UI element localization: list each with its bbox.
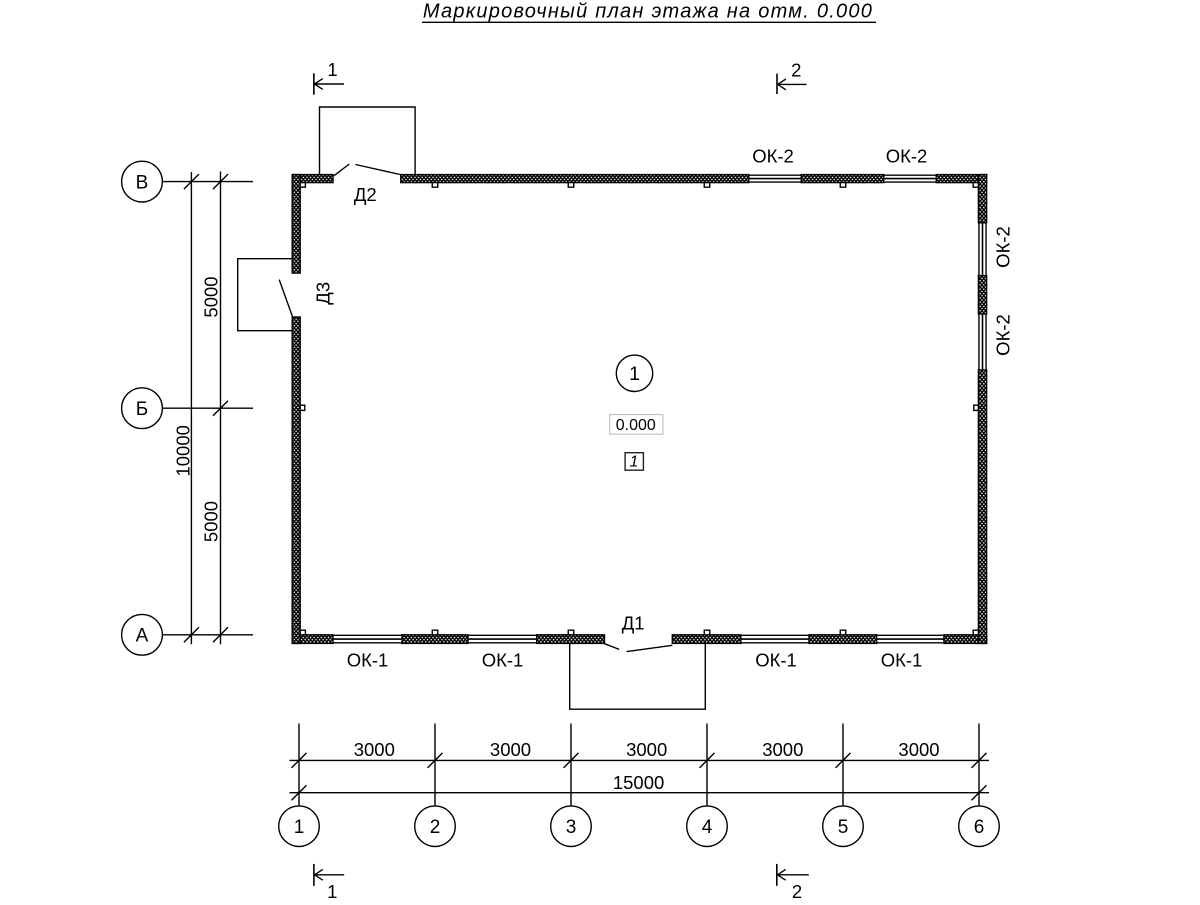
- svg-text:3000: 3000: [490, 739, 531, 760]
- svg-text:4: 4: [702, 817, 713, 838]
- svg-text:1: 1: [327, 59, 337, 80]
- svg-text:ОК-2: ОК-2: [993, 226, 1014, 268]
- svg-text:ОК-1: ОК-1: [881, 650, 923, 671]
- svg-text:3000: 3000: [626, 739, 667, 760]
- svg-text:3: 3: [566, 817, 577, 838]
- svg-text:10000: 10000: [173, 425, 194, 476]
- svg-text:ОК-1: ОК-1: [482, 650, 524, 671]
- svg-text:ОК-1: ОК-1: [755, 650, 797, 671]
- svg-text:2: 2: [792, 881, 802, 900]
- svg-text:3000: 3000: [354, 739, 395, 760]
- svg-text:3000: 3000: [898, 739, 939, 760]
- svg-text:ОК-2: ОК-2: [752, 145, 794, 166]
- svg-text:Маркировочный план этажа на от: Маркировочный план этажа на отм. 0.000: [423, 1, 873, 23]
- svg-text:5: 5: [838, 817, 849, 838]
- svg-text:1: 1: [630, 454, 639, 471]
- svg-text:1: 1: [294, 817, 305, 838]
- svg-text:15000: 15000: [613, 772, 664, 793]
- svg-text:1: 1: [327, 881, 337, 900]
- svg-text:ОК-1: ОК-1: [347, 650, 389, 671]
- svg-text:3000: 3000: [762, 739, 803, 760]
- svg-text:5000: 5000: [201, 501, 222, 542]
- svg-text:5000: 5000: [201, 276, 222, 317]
- svg-text:ОК-2: ОК-2: [886, 145, 928, 166]
- svg-text:0.000: 0.000: [616, 417, 656, 434]
- svg-text:Б: Б: [136, 399, 148, 420]
- svg-text:6: 6: [974, 817, 985, 838]
- svg-text:Д1: Д1: [622, 613, 645, 634]
- svg-text:1: 1: [629, 363, 640, 385]
- svg-text:2: 2: [791, 60, 801, 81]
- svg-text:Д3: Д3: [313, 282, 334, 305]
- svg-text:ОК-2: ОК-2: [993, 314, 1014, 356]
- svg-text:2: 2: [430, 817, 441, 838]
- svg-text:Д2: Д2: [354, 184, 377, 205]
- svg-text:А: А: [136, 626, 149, 647]
- svg-text:В: В: [136, 173, 149, 194]
